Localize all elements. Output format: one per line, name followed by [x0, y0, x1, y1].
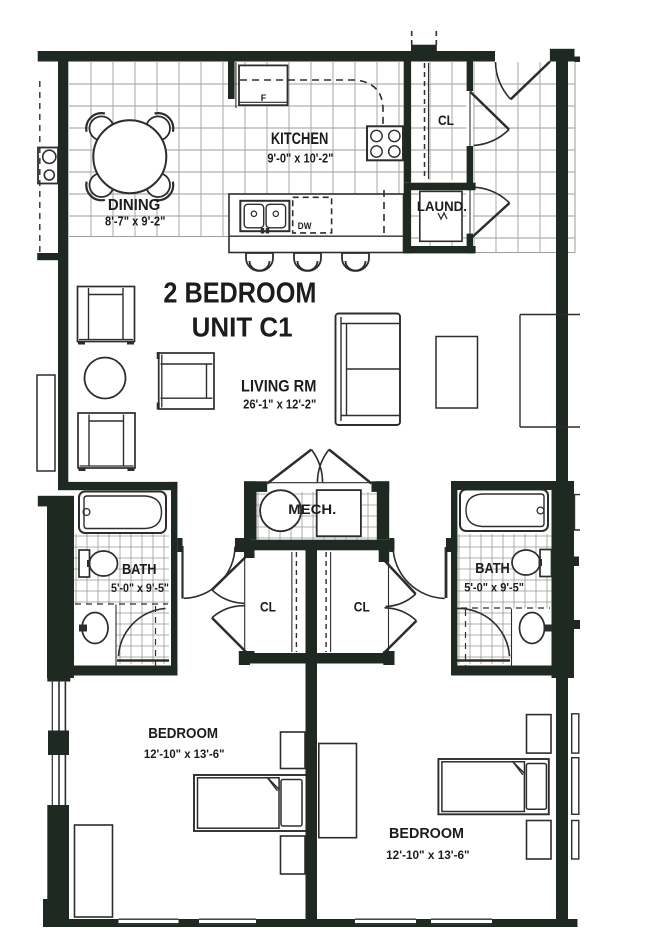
- svg-text:2 BEDROOM: 2 BEDROOM: [163, 278, 316, 310]
- svg-text:BEDROOM: BEDROOM: [148, 726, 218, 742]
- svg-text:BEDROOM: BEDROOM: [389, 826, 464, 842]
- svg-text:LAUND.: LAUND.: [417, 199, 467, 214]
- svg-text:DW: DW: [298, 221, 312, 232]
- svg-text:5'-0" x 9'-5": 5'-0" x 9'-5": [111, 581, 169, 595]
- svg-text:12'-10" x 13'-6": 12'-10" x 13'-6": [144, 747, 225, 761]
- svg-text:CL: CL: [438, 113, 454, 128]
- svg-text:F: F: [261, 93, 267, 103]
- svg-text:KITCHEN: KITCHEN: [271, 129, 329, 148]
- svg-text:UNIT C1: UNIT C1: [192, 312, 293, 343]
- svg-text:5'-0" x 9'-5": 5'-0" x 9'-5": [464, 581, 524, 595]
- svg-text:LIVING RM: LIVING RM: [241, 377, 316, 396]
- svg-text:DINING: DINING: [108, 197, 161, 214]
- svg-text:BATH: BATH: [475, 561, 510, 577]
- svg-text:12'-10" x 13'-6": 12'-10" x 13'-6": [386, 848, 470, 862]
- svg-text:26'-1" x 12'-2": 26'-1" x 12'-2": [243, 397, 316, 412]
- svg-text:MECH.: MECH.: [288, 502, 336, 517]
- svg-text:8'-7" x 9'-2": 8'-7" x 9'-2": [105, 214, 165, 229]
- svg-text:BATH: BATH: [122, 562, 157, 578]
- svg-text:CL: CL: [260, 600, 276, 615]
- svg-text:9'-0" x 10'-2": 9'-0" x 10'-2": [267, 150, 333, 165]
- svg-text:CL: CL: [354, 600, 370, 615]
